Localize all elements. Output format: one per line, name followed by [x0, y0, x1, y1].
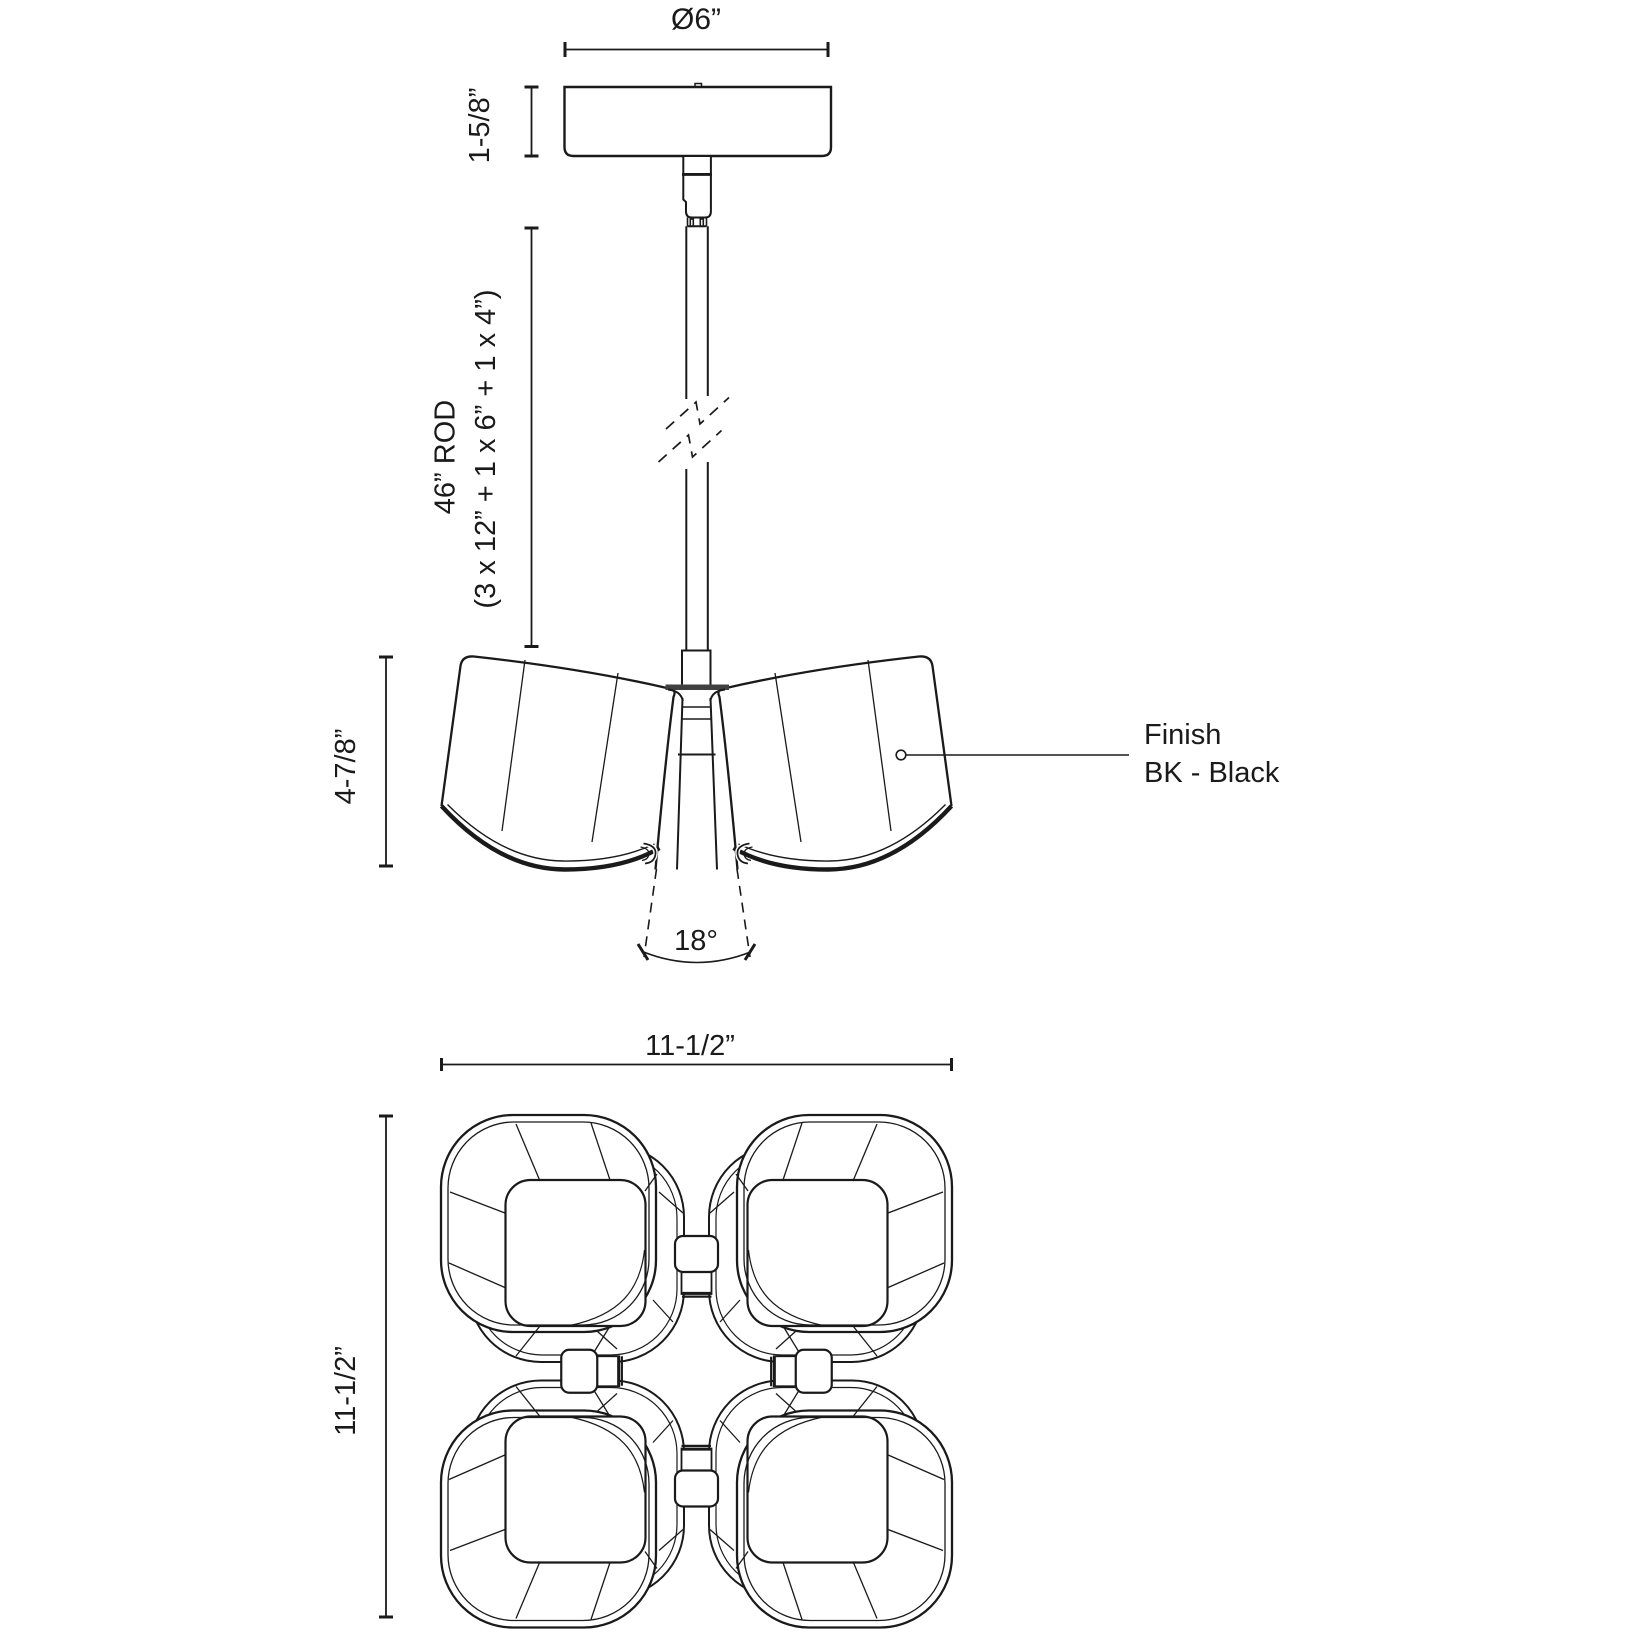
- svg-text:(3 x 12” + 1 x 6” + 1 x 4”): (3 x 12” + 1 x 6” + 1 x 4”): [470, 289, 502, 608]
- svg-text:11-1/2”: 11-1/2”: [330, 1346, 362, 1436]
- svg-text:46” ROD: 46” ROD: [430, 400, 462, 514]
- svg-text:Finish: Finish: [1144, 719, 1221, 751]
- svg-text:Ø6”: Ø6”: [671, 3, 721, 36]
- svg-text:BK - Black: BK - Black: [1144, 757, 1280, 789]
- svg-text:1-5/8”: 1-5/8”: [464, 88, 496, 164]
- svg-text:18°: 18°: [674, 925, 718, 957]
- svg-text:4-7/8”: 4-7/8”: [330, 729, 362, 805]
- svg-text:11-1/2”: 11-1/2”: [645, 1030, 735, 1062]
